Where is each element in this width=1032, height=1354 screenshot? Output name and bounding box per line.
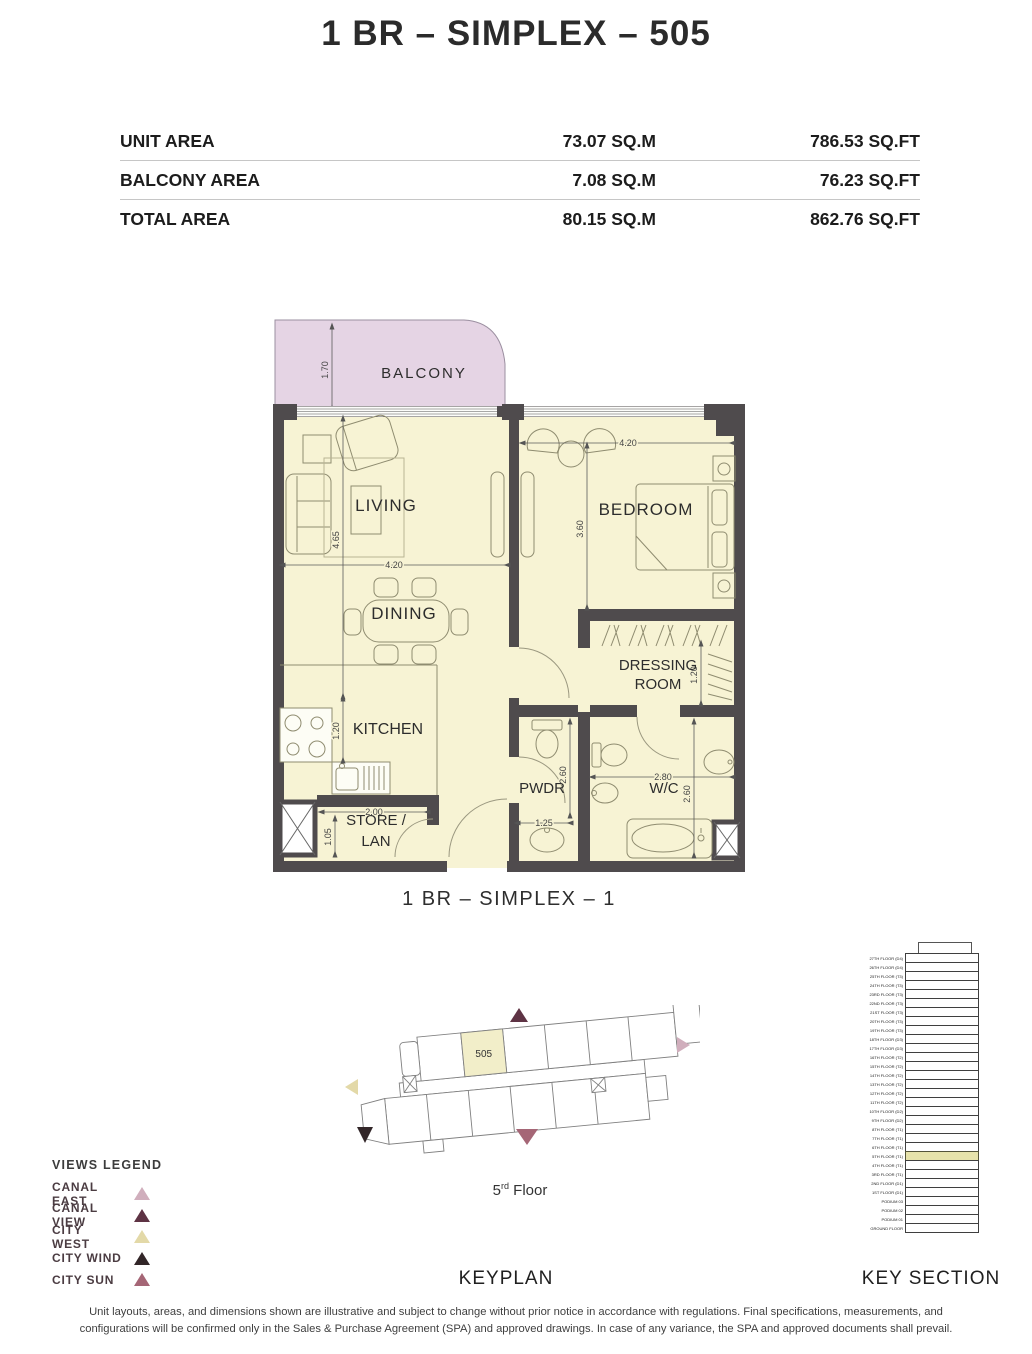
- keyplan-floor-text: 5rd Floor: [440, 1181, 600, 1199]
- living-label: LIVING: [355, 496, 417, 515]
- key-section-floor-label: 25TH FLOOR (T3): [862, 972, 905, 981]
- area-table: UNIT AREA 73.07 SQ.M 786.53 SQ.FT BALCON…: [120, 122, 920, 238]
- views-legend: VIEWS LEGEND CANAL EASTCANAL VIEWCITY WE…: [52, 1158, 162, 1291]
- triangle-city-west-icon: [345, 1079, 358, 1095]
- disclaimer-line1: Unit layouts, areas, and dimensions show…: [0, 1304, 1032, 1321]
- disclaimer: Unit layouts, areas, and dimensions show…: [0, 1304, 1032, 1338]
- balcony-label: BALCONY: [381, 365, 467, 382]
- store-label2: LAN: [361, 833, 390, 850]
- store-height-dim: 1.05: [323, 828, 333, 846]
- view-triangle-icon: [134, 1209, 150, 1222]
- views-legend-heading: VIEWS LEGEND: [52, 1158, 162, 1172]
- keyplan-section-label: KEYPLAN: [406, 1268, 606, 1290]
- key-section-floor-label: GROUND FLOOR: [862, 1224, 905, 1233]
- dining-label: DINING: [371, 604, 437, 623]
- key-section-rows: 27TH FLOOR (D4)26TH FLOOR (D4)25TH FLOOR…: [862, 954, 979, 1233]
- kitchen-label: KITCHEN: [353, 721, 423, 738]
- key-section-floor-label: 9TH FLOOR (D2): [862, 1116, 905, 1125]
- living-height-dim: 4.65: [331, 531, 341, 549]
- view-triangle-icon: [134, 1230, 150, 1243]
- sink-symbol: [332, 762, 390, 794]
- views-legend-items: CANAL EASTCANAL VIEWCITY WESTCITY WINDCI…: [52, 1183, 162, 1291]
- key-section-floor-label: 13TH FLOOR (T2): [862, 1080, 905, 1089]
- key-section-label: KEY SECTION: [831, 1268, 1031, 1290]
- unit-area-sqft: 786.53 SQ.FT: [656, 131, 920, 152]
- key-section-floor-label: PODIUM 03: [862, 1197, 905, 1206]
- floor-plan: 1.70 BALCONY: [264, 306, 754, 876]
- total-area-label: TOTAL AREA: [120, 209, 392, 230]
- key-section-floor-label: 22ND FLOOR (T3): [862, 999, 905, 1008]
- key-section-floor-label: 2ND FLOOR (D1): [862, 1179, 905, 1188]
- key-section-floor-label: 16TH FLOOR (T2): [862, 1053, 905, 1062]
- kitchen-depth-dim: 1.20: [331, 722, 341, 740]
- key-section-floor-label: 17TH FLOOR (D3): [862, 1044, 905, 1053]
- balcony-area-label: BALCONY AREA: [120, 170, 392, 191]
- views-legend-item-label: CITY WEST: [52, 1223, 124, 1251]
- view-triangle-icon: [134, 1273, 150, 1286]
- key-section-floor-label: 7TH FLOOR (T1): [862, 1134, 905, 1143]
- balcony-area-sqm: 7.08 SQ.M: [392, 170, 656, 191]
- view-triangle-icon: [134, 1187, 150, 1200]
- floor-word: Floor: [513, 1182, 547, 1199]
- bedroom-width-dim: 4.20: [619, 438, 637, 448]
- page-title: 1 BR – SIMPLEX – 505: [0, 14, 1032, 54]
- key-section-floor-label: 27TH FLOOR (D4): [862, 954, 905, 963]
- views-legend-item-label: CITY WIND: [52, 1251, 124, 1265]
- dressing-room-label: DRESSING: [619, 657, 697, 674]
- floor-ordinal: rd: [501, 1181, 509, 1191]
- key-section-floor-label: 26TH FLOOR (D4): [862, 963, 905, 972]
- key-section-floor-label: 18TH FLOOR (D3): [862, 1035, 905, 1044]
- key-section-floor-label: 10TH FLOOR (D2): [862, 1107, 905, 1116]
- unit-area-sqm: 73.07 SQ.M: [392, 131, 656, 152]
- key-section-floor-label: 24TH FLOOR (T3): [862, 981, 905, 990]
- key-section: 27TH FLOOR (D4)26TH FLOOR (D4)25TH FLOOR…: [862, 942, 979, 1233]
- triangle-canal-view-icon: [510, 1008, 528, 1022]
- key-section-floor-label: 5TH FLOOR (T1): [862, 1152, 905, 1161]
- balcony-area: 1.70 BALCONY: [275, 320, 505, 412]
- key-section-floor-label: 23RD FLOOR (T3): [862, 990, 905, 999]
- bedroom-height-dim: 3.60: [575, 520, 585, 538]
- wc-height-dim: 2.60: [682, 785, 692, 803]
- floor-number: 5: [493, 1182, 501, 1199]
- views-legend-item: CITY WEST: [52, 1226, 162, 1248]
- plan-caption: 1 BR – SIMPLEX – 1: [264, 888, 754, 911]
- disclaimer-line2: configurations will be confirmed only in…: [0, 1321, 1032, 1338]
- views-legend-item-label: CITY SUN: [52, 1273, 124, 1287]
- table-row: TOTAL AREA 80.15 SQ.M 862.76 SQ.FT: [120, 200, 920, 238]
- total-area-sqft: 862.76 SQ.FT: [656, 209, 920, 230]
- key-section-floor-label: PODIUM 01: [862, 1215, 905, 1224]
- dressing-room-label2: ROOM: [635, 676, 682, 693]
- store-label: STORE /: [346, 812, 407, 829]
- key-section-floor-label: 19TH FLOOR (T3): [862, 1026, 905, 1035]
- views-legend-item: CITY WIND: [52, 1248, 162, 1270]
- table-row: BALCONY AREA 7.08 SQ.M 76.23 SQ.FT: [120, 161, 920, 200]
- key-section-floor-label: 8TH FLOOR (T1): [862, 1125, 905, 1134]
- keyplan-unit-number: 505: [475, 1049, 492, 1060]
- triangle-city-sun-icon: [516, 1129, 538, 1145]
- wc-label: W/C: [649, 780, 678, 797]
- pwdr-width-dim: 1.25: [535, 818, 553, 828]
- unit-area-label: UNIT AREA: [120, 131, 392, 152]
- key-section-floor-label: 4TH FLOOR (T1): [862, 1161, 905, 1170]
- balcony-area-sqft: 76.23 SQ.FT: [656, 170, 920, 191]
- key-section-floor-label: 6TH FLOOR (T1): [862, 1143, 905, 1152]
- stove-symbol: [280, 708, 332, 762]
- view-triangle-icon: [134, 1252, 150, 1265]
- total-area-sqm: 80.15 SQ.M: [392, 209, 656, 230]
- key-section-floor-label: 1ST FLOOR (D1): [862, 1188, 905, 1197]
- pwdr-label: PWDR: [519, 780, 565, 797]
- balcony-depth-dim: 1.70: [320, 361, 330, 379]
- keyplan: 505: [340, 1005, 700, 1165]
- key-section-floor-label: 11TH FLOOR (T2): [862, 1098, 905, 1107]
- key-section-floor-label: 15TH FLOOR (T2): [862, 1062, 905, 1071]
- views-legend-item: CITY SUN: [52, 1269, 162, 1291]
- living-width-dim: 4.20: [385, 560, 403, 570]
- key-section-roof: [918, 942, 972, 954]
- key-section-floor-label: 14TH FLOOR (T2): [862, 1071, 905, 1080]
- key-section-floor-box: [905, 1223, 979, 1233]
- key-section-floor-label: 12TH FLOOR (T2): [862, 1089, 905, 1098]
- key-section-floor-label: PODIUM 02: [862, 1206, 905, 1215]
- key-section-floor-label: 3RD FLOOR (T1): [862, 1170, 905, 1179]
- key-section-floor-label: 20TH FLOOR (T3): [862, 1017, 905, 1026]
- key-section-floor-row: GROUND FLOOR: [862, 1224, 979, 1233]
- key-section-floor-label: 21ST FLOOR (T3): [862, 1008, 905, 1017]
- table-row: UNIT AREA 73.07 SQ.M 786.53 SQ.FT: [120, 122, 920, 161]
- bedroom-label: BEDROOM: [599, 500, 694, 519]
